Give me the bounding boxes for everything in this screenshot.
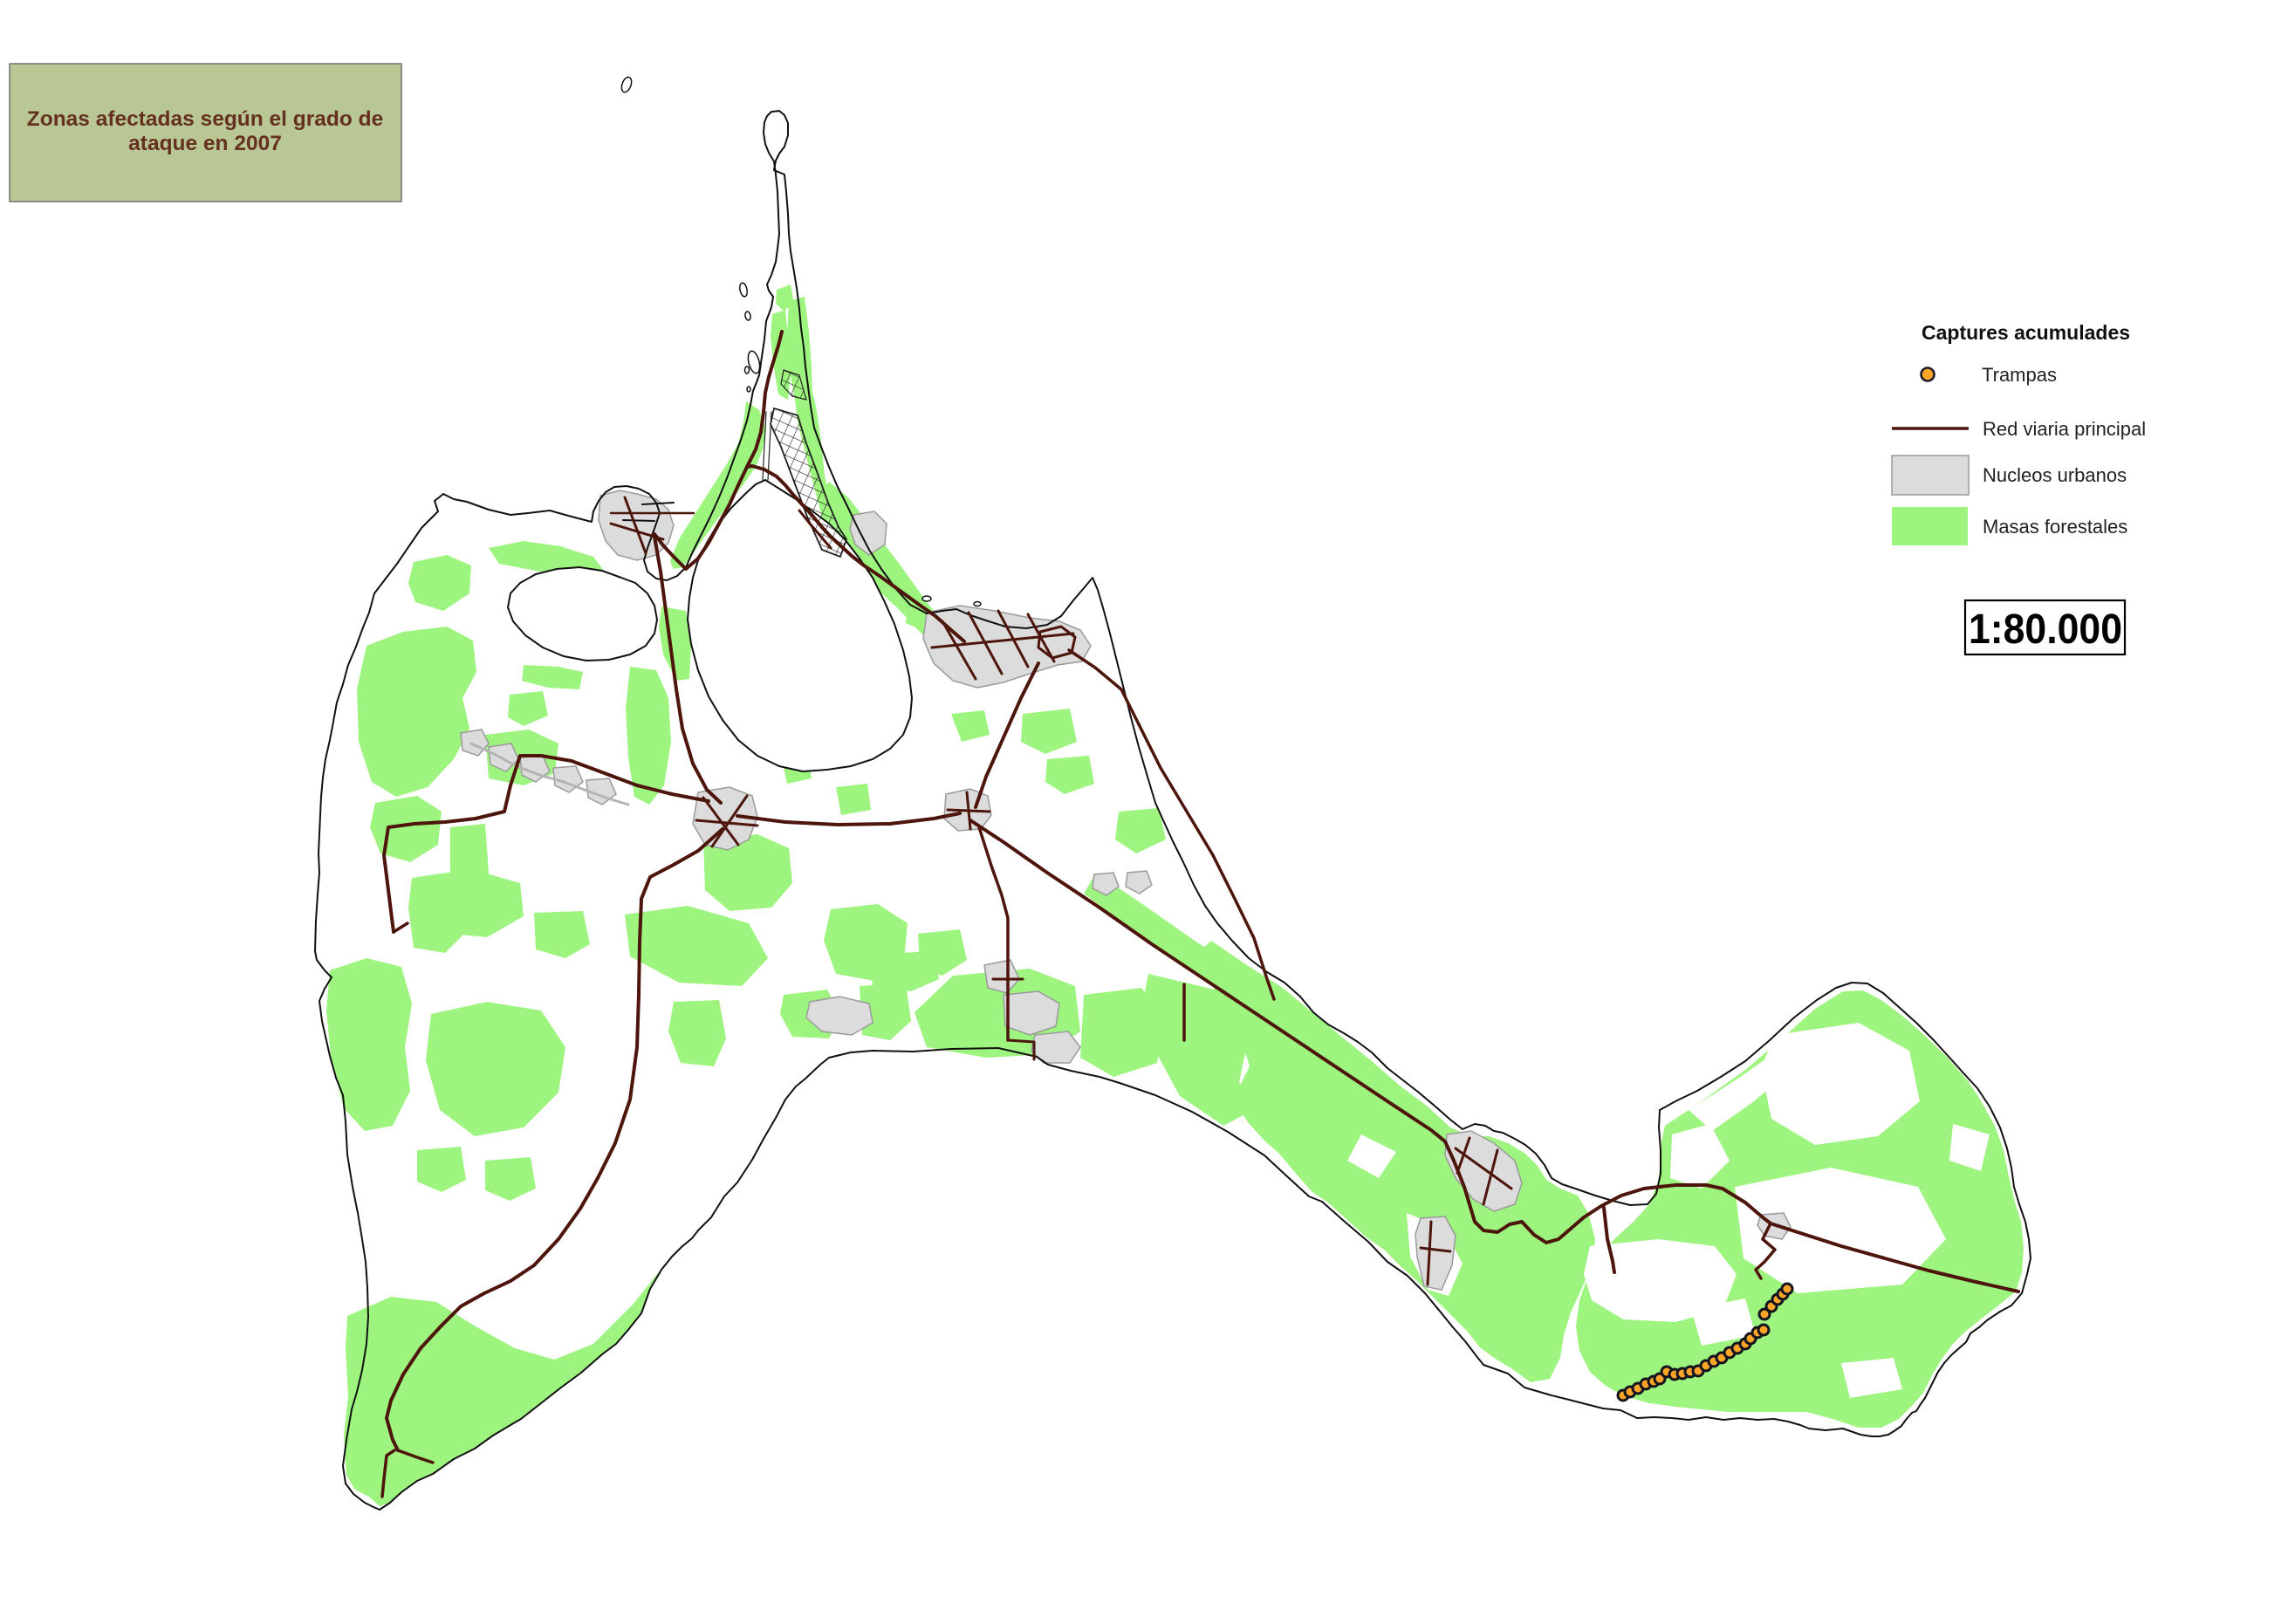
svg-text:Nucleos urbanos: Nucleos urbanos [1983,464,2127,486]
svg-text:1:80.000: 1:80.000 [1969,606,2122,653]
svg-text:ataque en 2007: ataque en 2007 [128,132,282,155]
svg-text:Red viaria principal: Red viaria principal [1983,418,2146,440]
svg-text:Captures acumulades: Captures acumulades [1922,321,2130,344]
svg-text:Masas forestales: Masas forestales [1983,516,2127,538]
svg-text:Trampas: Trampas [1982,364,2057,386]
svg-text:Zonas afectadas según el grado: Zonas afectadas según el grado de [27,107,383,131]
